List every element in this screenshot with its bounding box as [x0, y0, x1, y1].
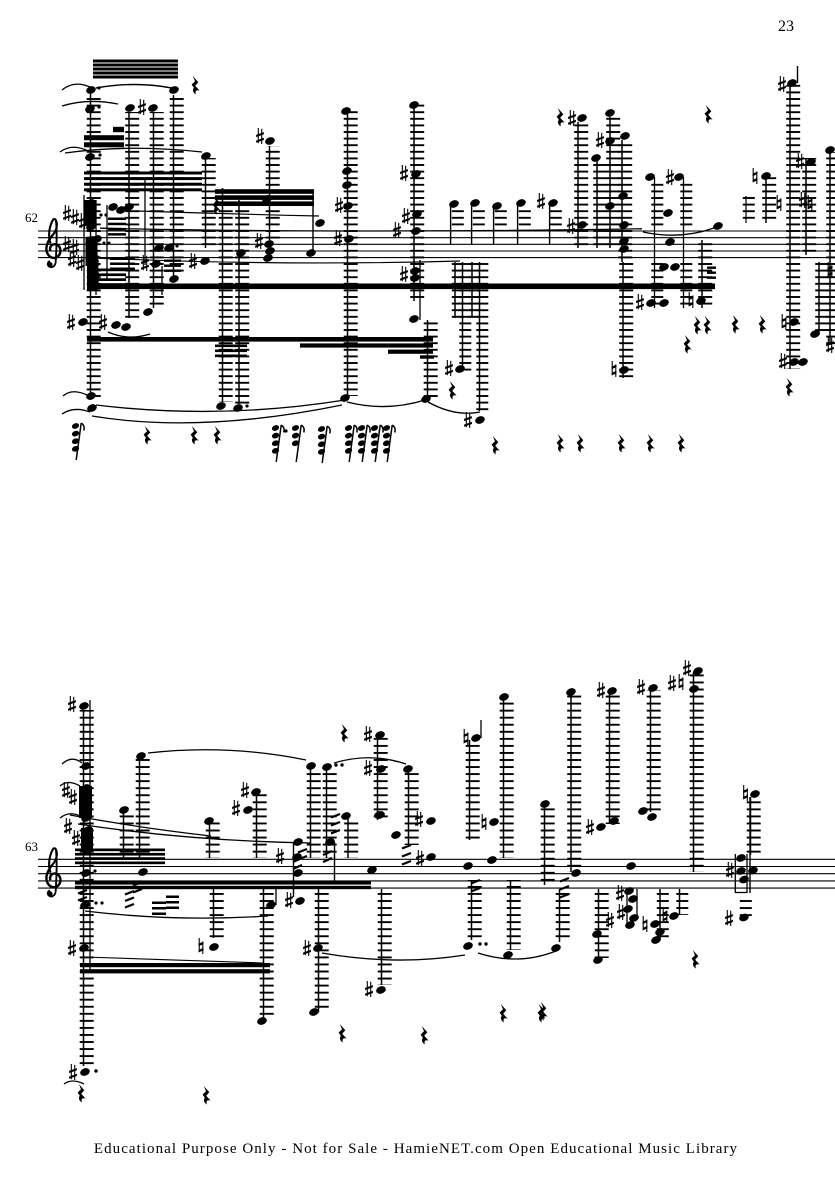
svg-text:62: 62 [25, 210, 38, 225]
svg-text:23: 23 [778, 18, 794, 35]
svg-text:63: 63 [25, 839, 38, 854]
svg-text:Educational Purpose Only - Not: Educational Purpose Only - Not for Sale … [94, 1141, 738, 1157]
